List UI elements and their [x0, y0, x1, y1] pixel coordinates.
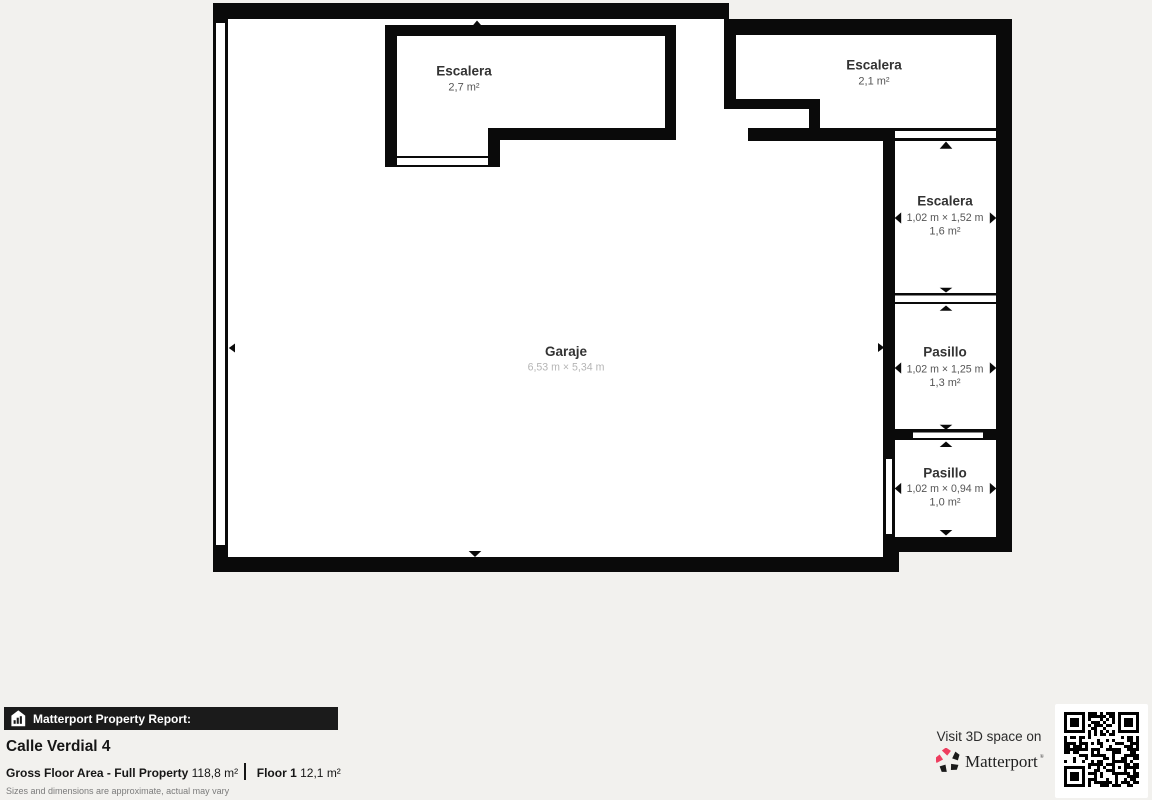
svg-text:2,7 m²: 2,7 m² — [448, 82, 480, 94]
svg-text:Garaje: Garaje — [545, 344, 588, 359]
svg-text:Pasillo: Pasillo — [923, 466, 967, 481]
svg-text:6,53 m × 5,34 m: 6,53 m × 5,34 m — [528, 362, 605, 374]
svg-text:Escalera: Escalera — [917, 194, 973, 209]
svg-text:1,02 m × 1,52 m: 1,02 m × 1,52 m — [907, 212, 984, 224]
svg-text:1,0 m²: 1,0 m² — [929, 497, 961, 509]
svg-text:®: ® — [1040, 753, 1044, 760]
svg-text:1,02 m × 0,94 m: 1,02 m × 0,94 m — [907, 483, 984, 495]
svg-text:Pasillo: Pasillo — [923, 345, 967, 360]
svg-text:1,3 m²: 1,3 m² — [929, 377, 961, 389]
svg-text:2,1 m²: 2,1 m² — [858, 76, 890, 88]
svg-text:1,02 m × 1,25 m: 1,02 m × 1,25 m — [907, 364, 984, 376]
svg-text:Escalera: Escalera — [436, 64, 492, 79]
svg-text:1,6 m²: 1,6 m² — [929, 226, 961, 238]
svg-text:Matterport: Matterport — [965, 752, 1038, 771]
svg-text:Escalera: Escalera — [846, 58, 902, 73]
